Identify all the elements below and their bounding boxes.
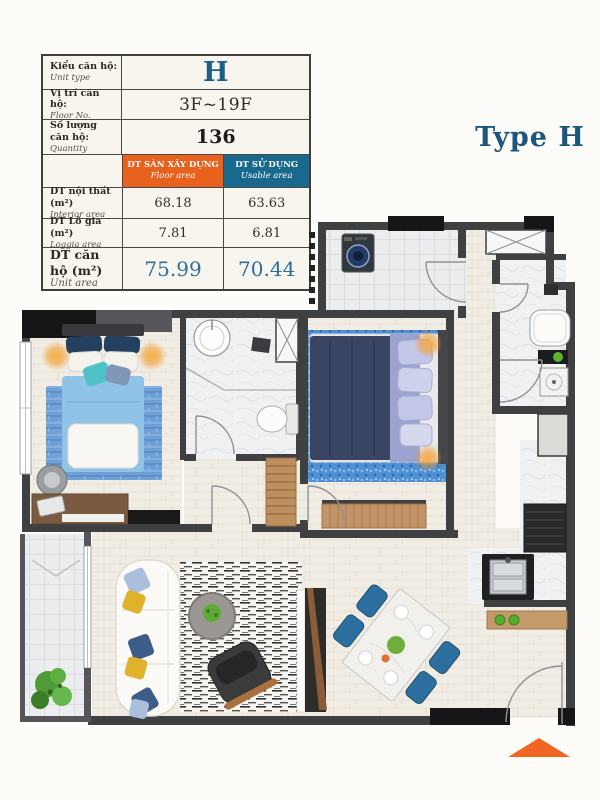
plant-icon [495,615,505,625]
floor-plan-image [0,0,600,800]
page: Kiểu căn hộ: Unit type H Vị trí căn hộ: … [0,0,600,800]
sofa-icon [116,560,180,720]
entry-bench [487,611,567,629]
faucet-icon [251,337,271,353]
bathtub-icon [530,310,570,346]
plant-icon [553,352,563,362]
hall-wardrobe-icon [266,458,296,526]
shower-icon [544,284,558,295]
orange-triangle-marker [508,738,570,757]
entry-threshold [430,708,510,725]
washing-machine-icon [342,234,374,272]
pipe-shaft-ribs [309,232,315,304]
tv-wall [297,588,327,712]
toilet-icon [257,406,287,432]
plant-icon [509,615,519,625]
bedroom-2-dresser-icon [322,500,426,528]
ac-unit-box [538,414,568,456]
coffee-table-icon [189,593,235,639]
